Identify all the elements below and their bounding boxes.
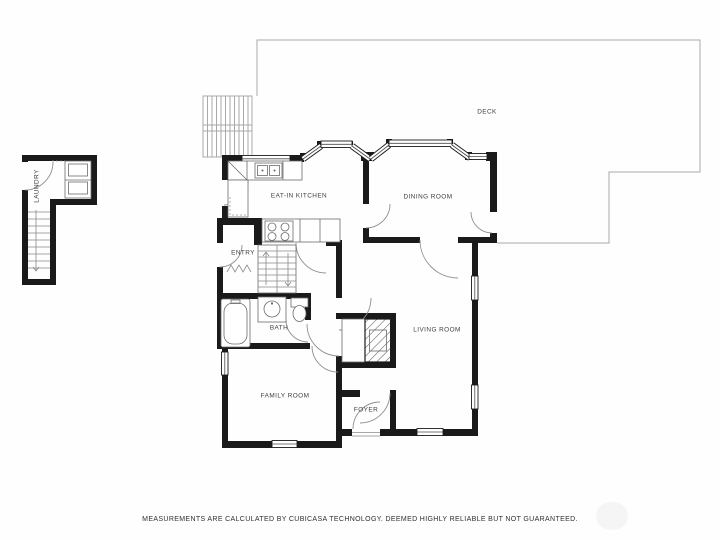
floor-plan-drawing xyxy=(0,0,720,540)
bath-sink xyxy=(258,297,286,322)
disclaimer-text: MEASUREMENTS ARE CALCULATED BY CUBICASA … xyxy=(0,516,720,523)
window xyxy=(417,429,443,436)
room-label-deck: DECK xyxy=(477,109,497,116)
room-label-entry: ENTRY xyxy=(231,250,255,257)
deck-door-arc xyxy=(471,212,492,233)
bathtub xyxy=(221,299,250,347)
kitchen-counters xyxy=(228,161,340,242)
room-label-bath: BATH xyxy=(270,325,288,332)
window xyxy=(472,385,479,409)
front-door-threshold xyxy=(352,433,380,437)
room-label-kitchen: EAT-IN KITCHEN xyxy=(271,193,327,200)
family-door-arc xyxy=(312,346,338,372)
floor-plan: DECK EAT-IN KITCHEN DINING ROOM ENTRY BA… xyxy=(0,0,720,540)
window xyxy=(222,352,229,375)
hall-door-arc xyxy=(307,324,339,356)
deck-stairs xyxy=(203,96,252,157)
room-label-dining: DINING ROOM xyxy=(404,194,453,201)
washer-dryer xyxy=(52,161,91,198)
window xyxy=(472,276,479,300)
fireplace xyxy=(342,319,391,362)
entry-closet xyxy=(227,265,251,272)
window xyxy=(272,441,297,448)
room-label-laundry: LAUNDRY xyxy=(34,169,41,203)
basement-stairs xyxy=(28,210,50,271)
room-label-family: FAMILY ROOM xyxy=(261,393,310,400)
dining-living-opening-arc xyxy=(420,240,458,278)
room-label-living: LIVING ROOM xyxy=(413,327,461,334)
bath-fixtures xyxy=(221,297,308,347)
walls xyxy=(22,139,497,448)
main-stairs xyxy=(258,245,296,293)
room-label-foyer: FOYER xyxy=(354,407,378,414)
bath-door-arc xyxy=(286,320,308,342)
dining-door-arc xyxy=(366,204,390,228)
stair-door-arc xyxy=(296,243,326,273)
bay-window-kitchen xyxy=(303,141,370,159)
